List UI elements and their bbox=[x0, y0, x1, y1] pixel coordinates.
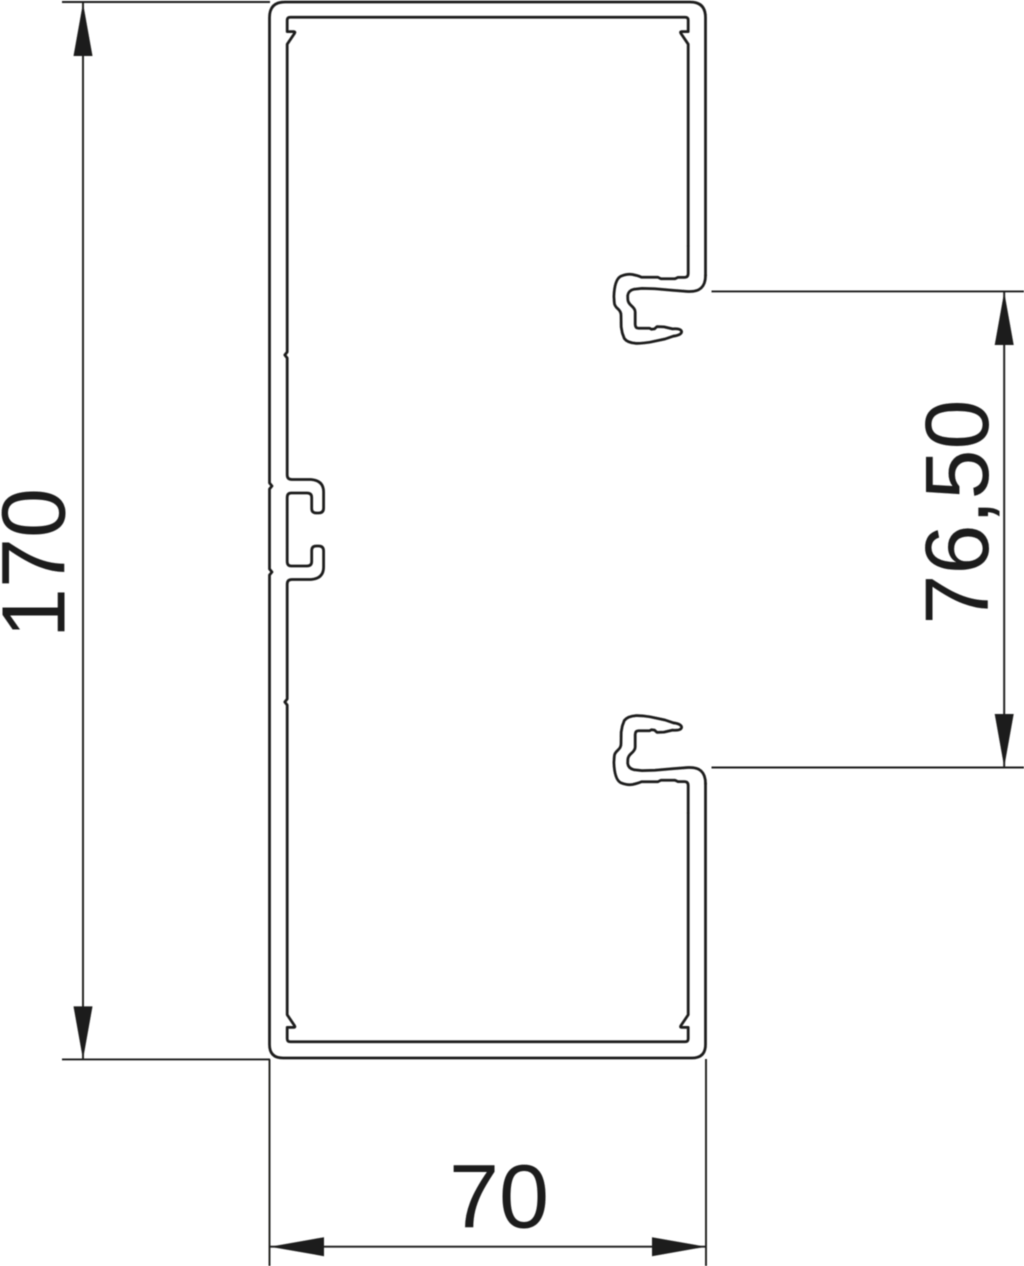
svg-text:170: 170 bbox=[0, 488, 85, 638]
svg-text:76,50: 76,50 bbox=[908, 399, 1008, 624]
svg-text:70: 70 bbox=[449, 1148, 549, 1248]
